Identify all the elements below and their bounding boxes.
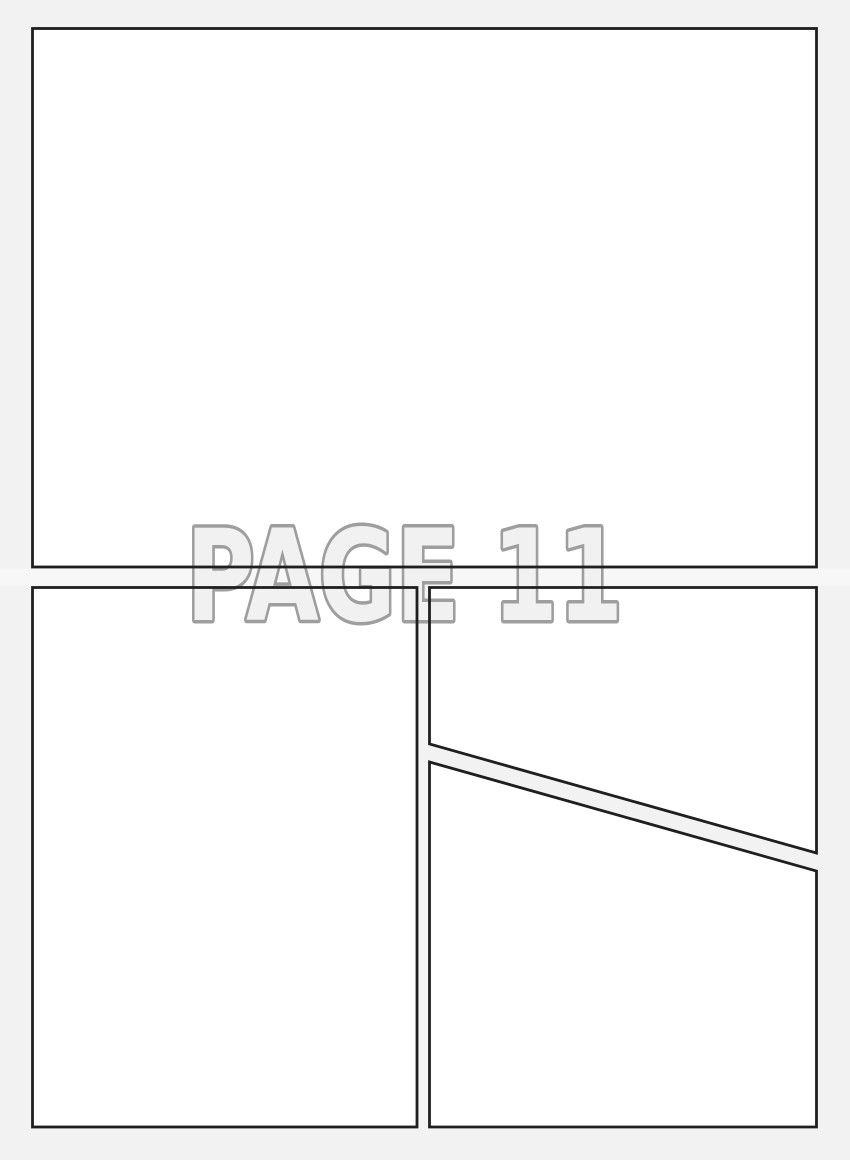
comic-page-canvas: PAGE 11 [0,0,850,1160]
comic-page-template: PAGE 11 [0,0,850,1160]
panel-1-fill [33,29,817,568]
page-number-label: PAGE 11 [186,502,623,650]
panel-2-fill [33,588,418,1128]
